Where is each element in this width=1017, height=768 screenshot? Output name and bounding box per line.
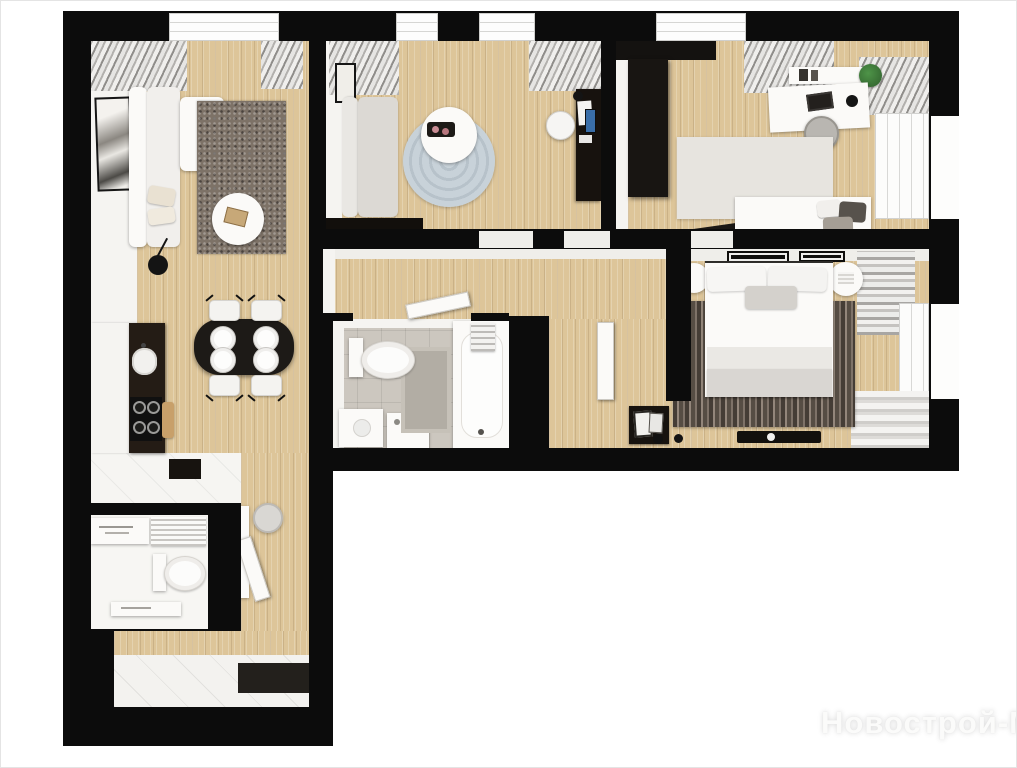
watermark: Новострой-М — [821, 705, 1017, 741]
wall-column-right-b — [309, 319, 333, 451]
study-sofa-seat — [358, 97, 398, 217]
door-opening-master — [691, 231, 733, 248]
sink-faucet — [141, 343, 146, 348]
toilet-bowl — [361, 341, 415, 379]
burner — [133, 421, 146, 434]
wall-column-right-a — [309, 249, 323, 319]
master-curtain-bottom-right — [851, 391, 929, 448]
wall-wc-right — [208, 503, 241, 631]
bath-faucet — [478, 429, 484, 435]
leaning-frame — [648, 413, 663, 434]
wc-accessories — [99, 526, 133, 528]
cooktop — [130, 397, 162, 441]
vanity — [339, 409, 383, 447]
dining-chair — [209, 375, 240, 396]
dining-chair — [251, 300, 282, 321]
study-sofa-back — [342, 97, 358, 217]
study-window-top-2 — [479, 13, 535, 41]
hall-pouf — [253, 503, 283, 533]
tray-cup — [767, 433, 775, 441]
wall-column-right-c — [309, 451, 333, 746]
burner — [147, 421, 160, 434]
dining-table — [194, 319, 294, 375]
towels — [471, 323, 495, 351]
office-wardrobe-top — [616, 41, 716, 60]
wc-lower-shelf — [111, 602, 181, 616]
wall-horizontal-mid — [309, 229, 959, 249]
desk-speaker — [573, 91, 583, 101]
living-window-top — [169, 13, 279, 41]
keyboard — [579, 135, 592, 143]
office-window-top — [656, 13, 746, 41]
kitchen-lower-counter — [91, 453, 241, 503]
nightstand-right — [829, 262, 863, 296]
dining-chair — [251, 375, 282, 396]
floor-plan-canvas: Новострой-М — [0, 0, 1017, 768]
cup — [442, 128, 449, 135]
window-gap-office-right — [931, 116, 959, 219]
study-window-top-1 — [396, 13, 438, 41]
washer-knob — [394, 419, 400, 425]
wall-below-wc — [91, 629, 114, 707]
wall-left-outer — [63, 11, 91, 746]
doormat — [238, 663, 310, 693]
nightstand-decor — [838, 272, 854, 284]
laptop — [806, 91, 834, 111]
door-opening-office — [564, 231, 610, 248]
wall-bottom-left — [63, 707, 333, 746]
vanity-sink — [353, 419, 371, 437]
office-window-right — [875, 113, 929, 219]
burner — [133, 401, 146, 414]
burner — [147, 401, 160, 414]
shelf-books — [799, 69, 808, 81]
wall-study-office — [601, 11, 616, 249]
serving-tray — [427, 122, 455, 137]
door-opening-study — [479, 231, 533, 248]
floor-tray — [737, 431, 821, 443]
wc-razor — [121, 607, 151, 609]
window-gap-master-right — [931, 304, 959, 399]
shelf-books — [811, 70, 818, 81]
plate — [253, 347, 279, 373]
master-blanket-end — [707, 369, 832, 397]
living-wall-art — [94, 96, 133, 191]
lower-counter-inset — [169, 459, 201, 479]
living-curtain-right — [261, 41, 303, 89]
wall-bath-hall-block — [509, 316, 549, 448]
master-accent-pillow — [745, 286, 797, 309]
office-left-wall-face — [616, 41, 628, 229]
desk-lamp — [846, 95, 858, 107]
wc-shelf — [91, 518, 149, 544]
wall-bottom-top-section — [333, 448, 959, 471]
kitchen-cabinet-run — [91, 323, 129, 453]
hallway-floor-wide — [114, 631, 309, 655]
wall-kitchen-wc — [91, 503, 208, 515]
wc-accessories — [105, 532, 129, 534]
kitchen-sink — [132, 348, 157, 375]
phone-screen — [585, 109, 596, 133]
sofa-back — [129, 87, 147, 247]
wall-right-outer — [929, 11, 959, 471]
corridor-left-door — [323, 245, 335, 315]
cup — [432, 126, 439, 133]
study-curtain-right — [529, 41, 601, 91]
wall-master-left — [666, 249, 691, 401]
entry-stool — [653, 434, 663, 444]
study-desk-chair — [546, 111, 575, 140]
wc-toilet-bowl — [164, 556, 206, 591]
office-wardrobe — [628, 59, 668, 197]
floor-lamp — [148, 255, 168, 275]
plate — [210, 347, 236, 373]
towel-radiator — [151, 517, 206, 546]
dining-chair — [209, 300, 240, 321]
entry-door-leaf — [597, 322, 614, 400]
wall-living-study — [309, 11, 326, 249]
living-curtain-left — [91, 41, 187, 91]
master-window-right — [899, 303, 929, 399]
cutting-board — [162, 402, 174, 438]
wall-bath-top-b — [471, 313, 509, 321]
corridor-floor — [323, 259, 691, 319]
master-floor-lamp — [674, 434, 683, 443]
